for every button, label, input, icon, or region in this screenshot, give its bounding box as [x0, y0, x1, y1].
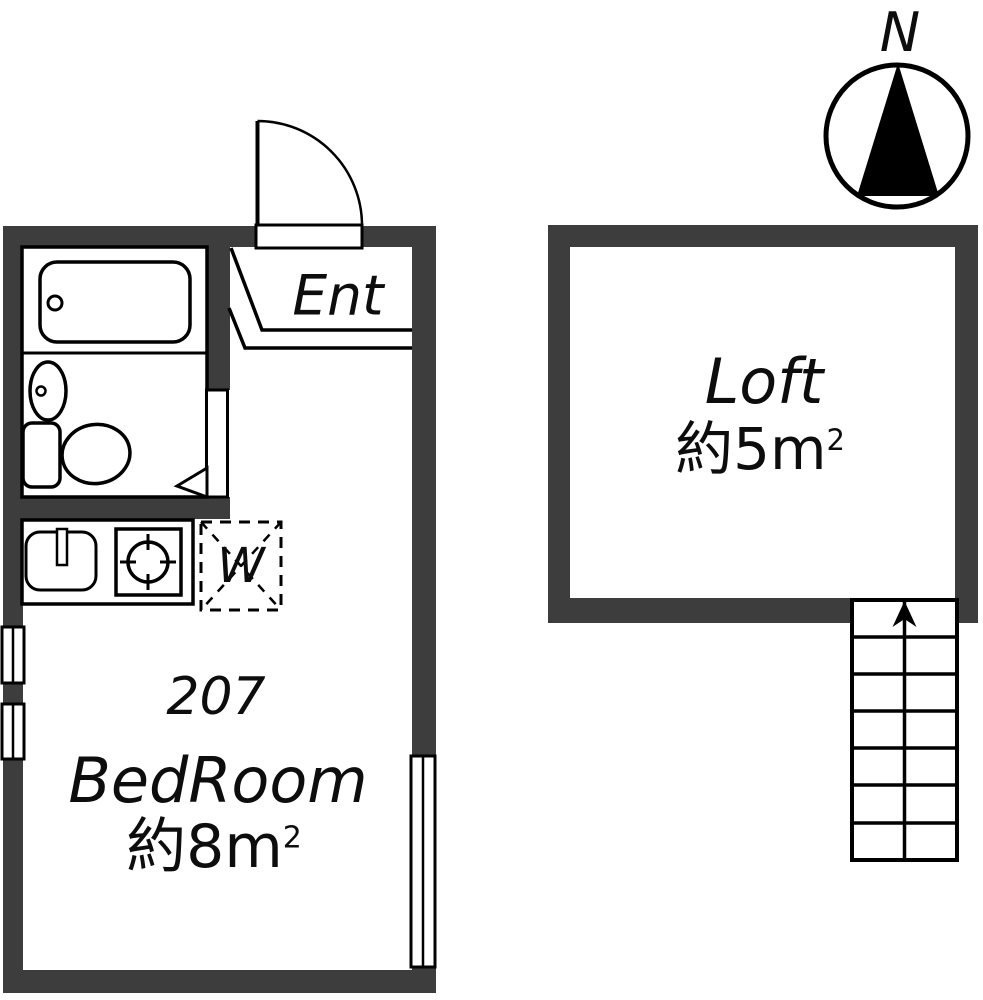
- window-left-upper: [2, 627, 24, 683]
- entrance-label: Ent: [292, 269, 383, 324]
- bathroom: [22, 247, 207, 497]
- window-left-lower: [2, 704, 24, 759]
- bedroom-area-exponent: 2: [283, 821, 302, 856]
- loft-area-value: 約5m: [675, 415, 826, 483]
- bedroom-area-label: 約8m2: [126, 817, 302, 877]
- bedroom-area-value: 約8m: [126, 812, 283, 882]
- compass-icon: [826, 63, 968, 207]
- stove-burner-icon: [116, 529, 181, 595]
- door-swing-arc: [258, 121, 363, 226]
- washer-label: W: [217, 542, 264, 590]
- compass-north-label: N: [880, 6, 920, 60]
- floor-plan: N Ent W 207 BedRoom 約8m2 Loft 約5m2: [0, 0, 983, 1000]
- stairs: [852, 600, 957, 860]
- bedroom-label: BedRoom: [68, 750, 367, 812]
- kitchen-sink-icon: [26, 529, 96, 590]
- toilet-icon: [23, 420, 134, 488]
- loft-area-exponent: 2: [826, 423, 844, 457]
- loft-label: Loft: [705, 351, 824, 413]
- wash-basin-icon: [30, 362, 66, 420]
- kitchen: [22, 520, 193, 604]
- window-right: [411, 756, 435, 967]
- entrance-door: [256, 121, 362, 248]
- loft-area-label: 約5m2: [675, 420, 845, 478]
- room-number-label: 207: [166, 671, 265, 723]
- bathtub-icon: [40, 262, 190, 342]
